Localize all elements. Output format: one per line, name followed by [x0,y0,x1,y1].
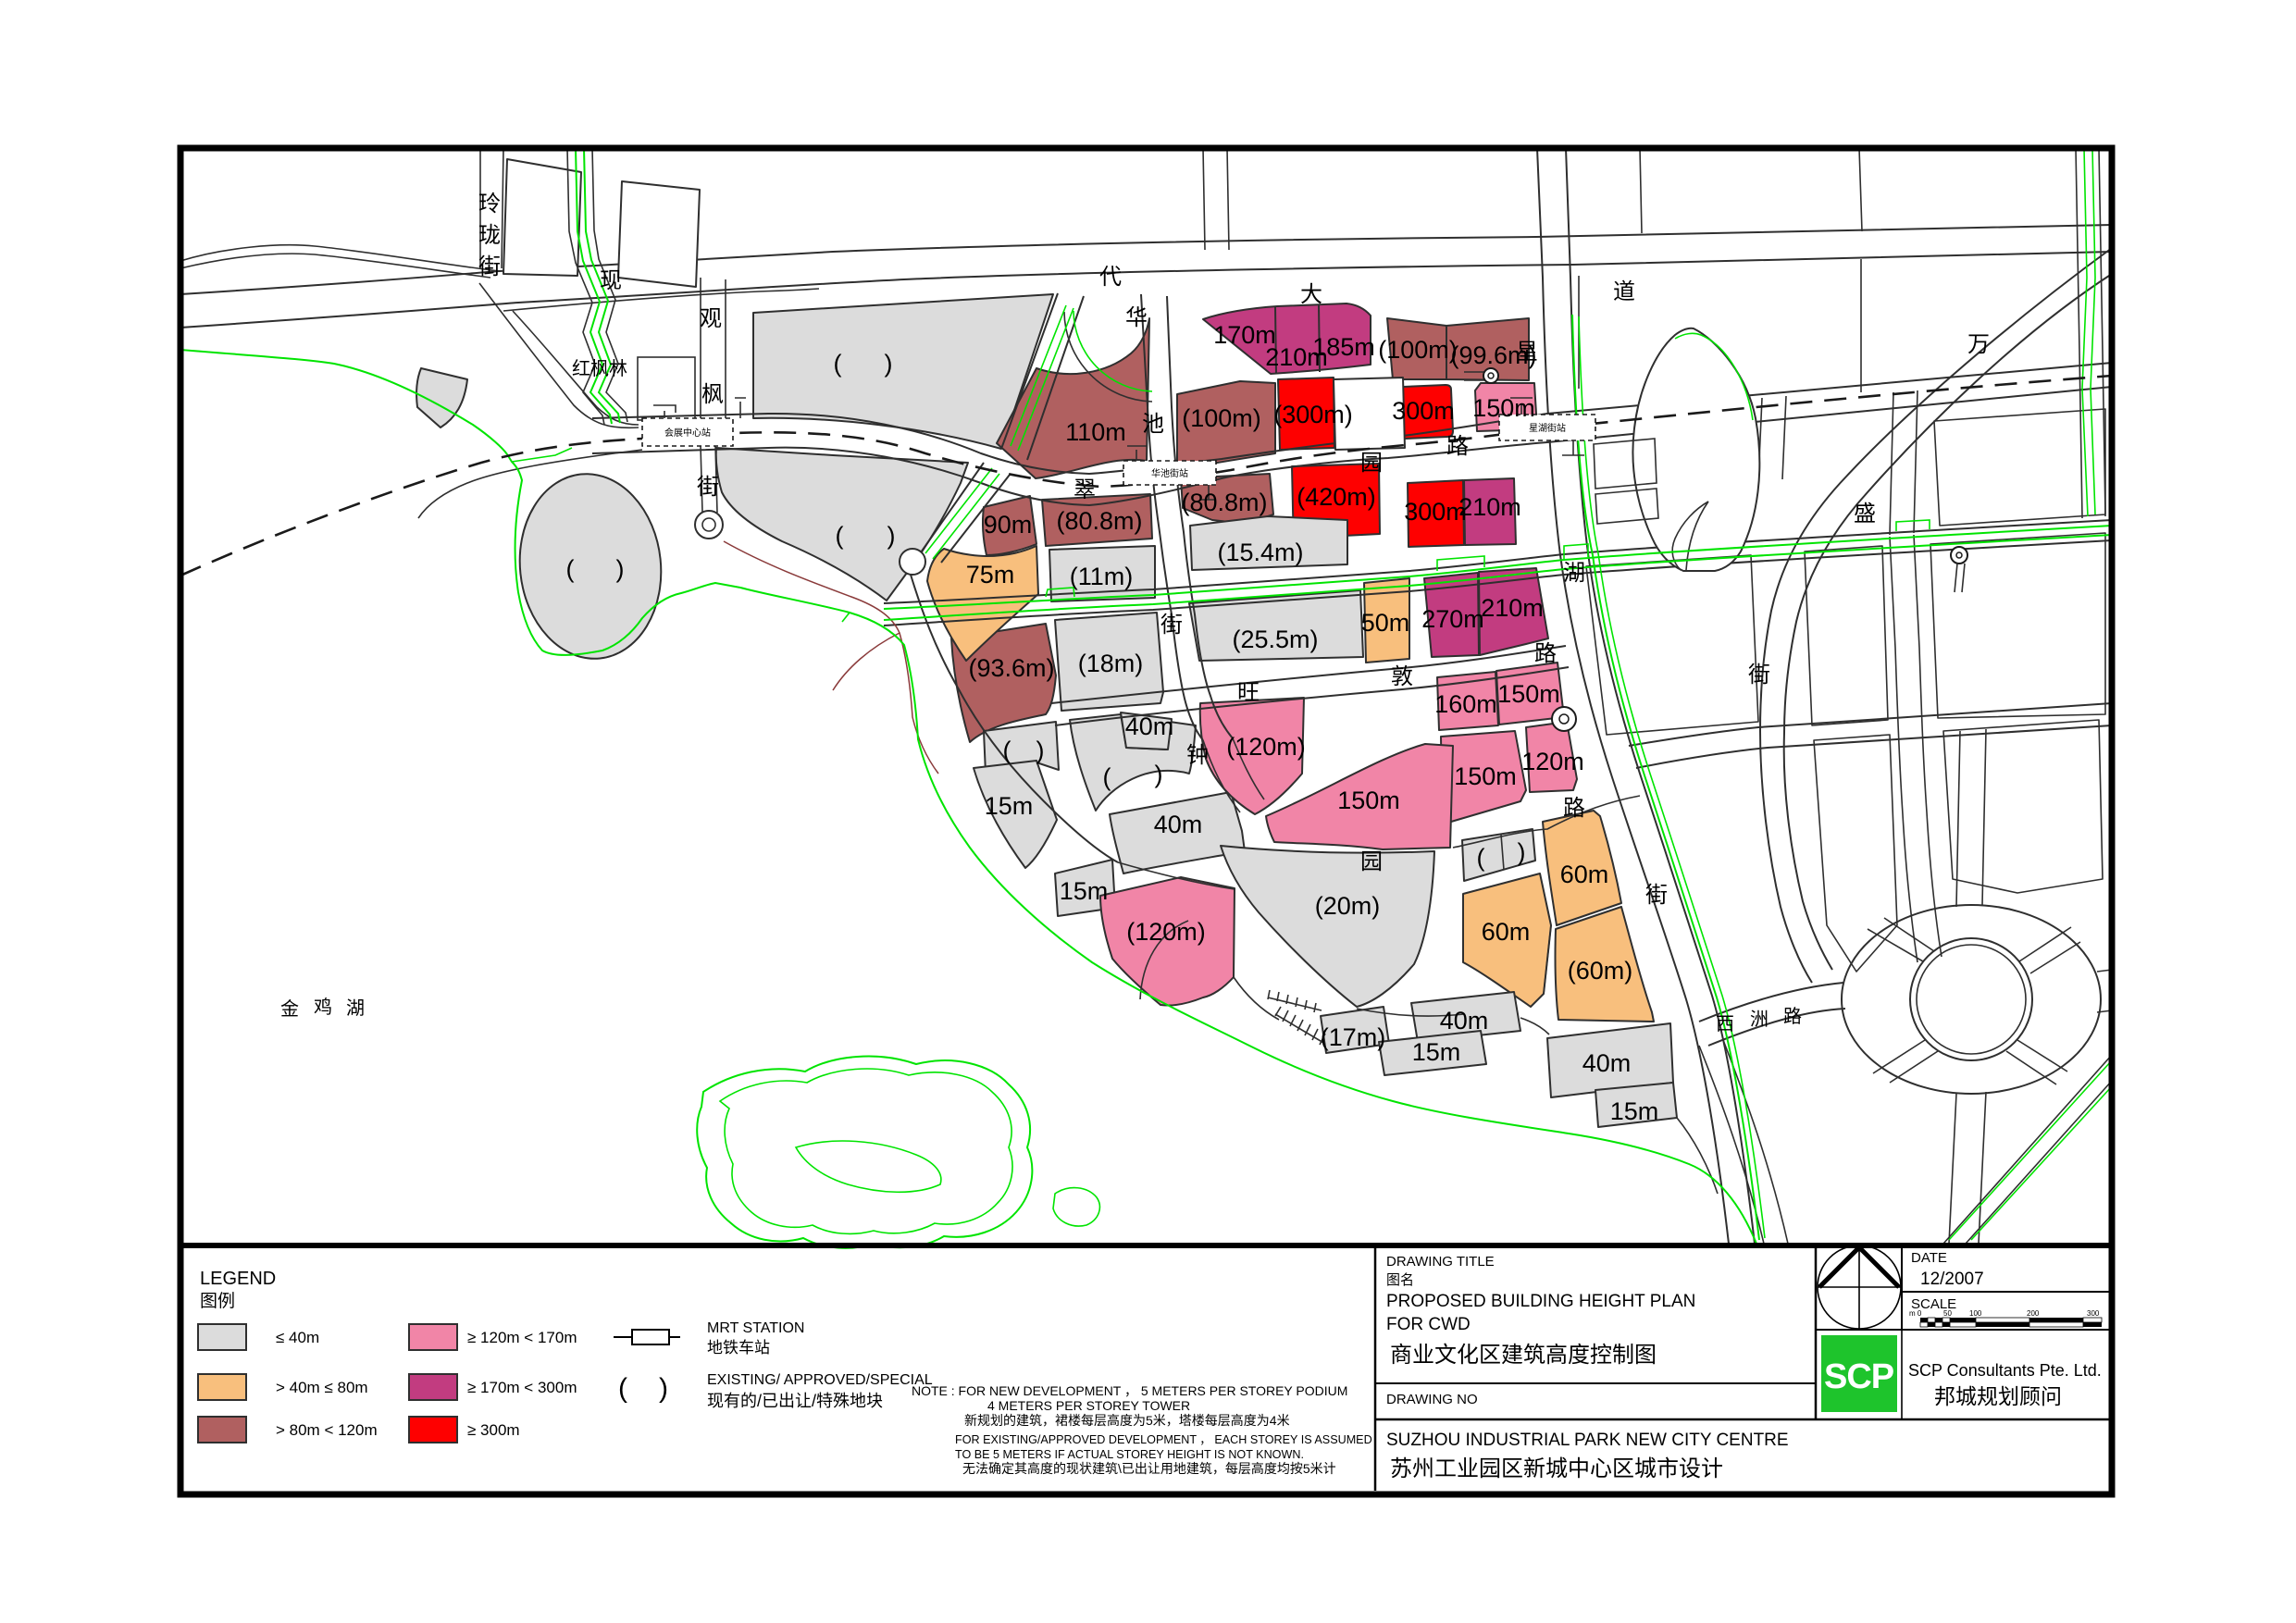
svg-text:邦城规划顾问: 邦城规划顾问 [1934,1384,2062,1408]
svg-text:40m: 40m [1582,1049,1632,1077]
svg-text:> 40m ≤ 80m: > 40m ≤ 80m [276,1379,368,1396]
svg-text:60m: 60m [1482,918,1531,946]
svg-text:(: ( [618,1373,627,1404]
svg-text:(: ( [1477,844,1485,872]
svg-text:园: 园 [1360,849,1383,874]
svg-text:FOR CWD: FOR CWD [1386,1315,1471,1334]
svg-text:(100m): (100m) [1182,404,1261,432]
svg-text:(60m): (60m) [1568,957,1633,985]
svg-text:): ) [659,1373,668,1404]
svg-text:无法确定其高度的现状建筑\已出让用地建筑，每层高度均按5米计: 无法确定其高度的现状建筑\已出让用地建筑，每层高度均按5米计 [962,1461,1336,1476]
svg-text:FOR EXISTING/APPROVED DEVELOP: FOR EXISTING/APPROVED DEVELOPMENT ， EACH… [955,1433,1372,1446]
svg-text:代: 代 [1099,265,1122,290]
svg-text:(15.4m): (15.4m) [1217,539,1303,566]
svg-text:MRT STATION: MRT STATION [707,1320,804,1336]
svg-text:15m: 15m [1412,1038,1461,1066]
svg-text:(420m): (420m) [1297,483,1376,511]
svg-text:珑: 珑 [478,223,501,248]
svg-text:≥ 300m: ≥ 300m [467,1421,520,1439]
svg-text:SCP Consultants Pte. Ltd.: SCP Consultants Pte. Ltd. [1908,1361,2102,1380]
svg-text:华: 华 [1125,305,1148,330]
svg-text:池: 池 [1142,412,1164,437]
svg-text:≤ 40m: ≤ 40m [276,1329,319,1346]
svg-text:15m: 15m [1610,1097,1659,1125]
svg-text:(18m): (18m) [1078,650,1144,677]
svg-text:300m: 300m [1392,397,1455,425]
svg-text:> 80m < 120m: > 80m < 120m [276,1421,378,1439]
svg-text:40m: 40m [1440,1007,1489,1035]
svg-text:街: 街 [1645,883,1668,908]
svg-text:商业文化区建筑高度控制图: 商业文化区建筑高度控制图 [1390,1343,1657,1368]
svg-text:90m: 90m [984,511,1033,539]
svg-text:): ) [616,555,625,583]
svg-text:观: 观 [700,306,722,331]
svg-text:(: ( [1003,737,1011,764]
svg-text:50m: 50m [1361,609,1410,637]
svg-text:街: 街 [1160,613,1183,638]
svg-text:110m: 110m [1065,418,1126,446]
svg-text:(80.8m): (80.8m) [1181,489,1267,516]
svg-text:12/2007: 12/2007 [1920,1270,1984,1289]
svg-text:): ) [1155,761,1163,788]
svg-text:LEGEND: LEGEND [200,1269,276,1289]
svg-text:300: 300 [2087,1309,2100,1318]
svg-text:): ) [1036,737,1045,764]
svg-text:会展中心站: 会展中心站 [664,427,711,439]
svg-text:(120m): (120m) [1126,918,1206,946]
svg-text:枫: 枫 [701,382,724,407]
svg-text:150m: 150m [1472,394,1535,422]
svg-text:路: 路 [1534,641,1557,666]
svg-text:(80.8m): (80.8m) [1056,507,1142,535]
svg-text:NOTE : FOR NEW DEVELOPMENT: NOTE : FOR NEW DEVELOPMENT ， 5 METERS PE… [912,1383,1347,1398]
svg-text:270m: 270m [1421,605,1484,633]
svg-text:万: 万 [1967,332,1990,357]
svg-text:道: 道 [1613,279,1635,304]
svg-text:SUZHOU INDUSTRIAL PARK NEW CIT: SUZHOU INDUSTRIAL PARK NEW CITY CENTRE [1386,1431,1789,1450]
svg-text:DRAWING TITLE: DRAWING TITLE [1386,1254,1495,1270]
svg-text:(: ( [1103,763,1111,791]
svg-text:(: ( [836,522,844,550]
svg-text:地铁车站: 地铁车站 [707,1339,770,1357]
svg-text:(11m): (11m) [1070,563,1134,590]
svg-text:120m: 120m [1521,748,1584,775]
svg-text:盛: 盛 [1854,502,1876,527]
svg-text:图名: 图名 [1386,1272,1414,1288]
svg-text:路: 路 [1446,434,1469,459]
svg-text:): ) [887,522,896,550]
svg-text:m 0: m 0 [1909,1309,1922,1318]
svg-text:(20m): (20m) [1315,892,1381,920]
svg-text:): ) [885,350,893,378]
svg-text:红枫林: 红枫林 [572,358,627,379]
svg-text:150m: 150m [1454,762,1517,790]
svg-text:西: 西 [1716,1014,1734,1035]
svg-text:40m: 40m [1125,712,1174,740]
svg-text:华池街站: 华池街站 [1151,467,1188,479]
svg-text:图例: 图例 [200,1291,235,1311]
svg-text:DRAWING NO: DRAWING NO [1386,1392,1478,1407]
svg-text:现有的/已出让/特殊地块: 现有的/已出让/特殊地块 [707,1392,883,1410]
svg-text:≥ 170m < 300m: ≥ 170m < 300m [467,1379,577,1396]
svg-text:现: 现 [600,268,622,293]
svg-text:300m: 300m [1404,498,1467,526]
svg-text:(17m): (17m) [1321,1023,1386,1051]
svg-text:(100m): (100m) [1378,336,1458,364]
svg-text:15m: 15m [985,792,1034,820]
svg-text:湖: 湖 [346,997,365,1019]
svg-text:4 METERS PER STOREY TOWER: 4 METERS PER STOREY TOWER [987,1398,1190,1413]
svg-text:洲: 洲 [1750,1010,1769,1030]
svg-text:园: 园 [1360,451,1383,476]
svg-text:PROPOSED BUILDING HEIGHT PLAN: PROPOSED BUILDING HEIGHT PLAN [1386,1292,1695,1311]
svg-text:TO BE 5 METERS IF ACTUAL STORE: TO BE 5 METERS IF ACTUAL STOREY HEIGHT I… [955,1448,1304,1461]
svg-text:SCP: SCP [1824,1357,1894,1396]
svg-text:): ) [1518,838,1526,866]
svg-text:EXISTING/ APPROVED/SPECIAL: EXISTING/ APPROVED/SPECIAL [707,1372,933,1388]
svg-text:湖: 湖 [1563,561,1585,586]
svg-text:185m: 185m [1312,333,1375,361]
svg-text:(: ( [566,555,575,583]
svg-text:路: 路 [1783,1006,1802,1027]
svg-text:(93.6m): (93.6m) [968,654,1054,682]
svg-text:210m: 210m [1481,594,1544,622]
svg-text:40m: 40m [1154,811,1203,838]
svg-text:100: 100 [1969,1309,1982,1318]
svg-text:鸡: 鸡 [314,997,332,1018]
svg-text:街: 街 [697,475,719,500]
svg-text:(99.6m): (99.6m) [1450,341,1536,369]
svg-text:钟: 钟 [1186,743,1209,768]
svg-text:(: ( [834,350,842,378]
svg-text:160m: 160m [1434,690,1497,718]
svg-text:星湖街站: 星湖街站 [1529,422,1566,434]
svg-text:旺: 旺 [1237,680,1260,705]
svg-text:街: 街 [1748,663,1770,688]
svg-text:(120m): (120m) [1226,733,1306,761]
svg-text:50: 50 [1943,1309,1952,1318]
svg-text:60m: 60m [1560,861,1609,888]
svg-text:210m: 210m [1458,493,1521,521]
svg-text:玲: 玲 [478,192,501,217]
svg-text:150m: 150m [1497,680,1560,708]
svg-text:75m: 75m [966,561,1015,588]
svg-text:200: 200 [2027,1309,2040,1318]
svg-text:新规划的建筑，裙楼每层高度为5米，塔楼每层高度为4米: 新规划的建筑，裙楼每层高度为5米，塔楼每层高度为4米 [964,1413,1290,1428]
svg-text:苏州工业园区新城中心区城市设计: 苏州工业园区新城中心区城市设计 [1390,1456,1723,1481]
svg-text:(25.5m): (25.5m) [1232,626,1318,653]
svg-text:路: 路 [1563,796,1585,821]
svg-text:≥ 120m < 170m: ≥ 120m < 170m [467,1329,577,1346]
svg-text:街: 街 [478,254,501,279]
svg-text:金: 金 [280,998,299,1020]
svg-text:大: 大 [1300,282,1322,307]
svg-text:15m: 15m [1060,877,1109,905]
svg-text:DATE: DATE [1911,1250,1947,1266]
svg-text:敦: 敦 [1391,664,1413,689]
svg-text:翠: 翠 [1074,477,1096,502]
svg-text:150m: 150m [1337,787,1400,814]
svg-text:(300m): (300m) [1273,401,1353,428]
